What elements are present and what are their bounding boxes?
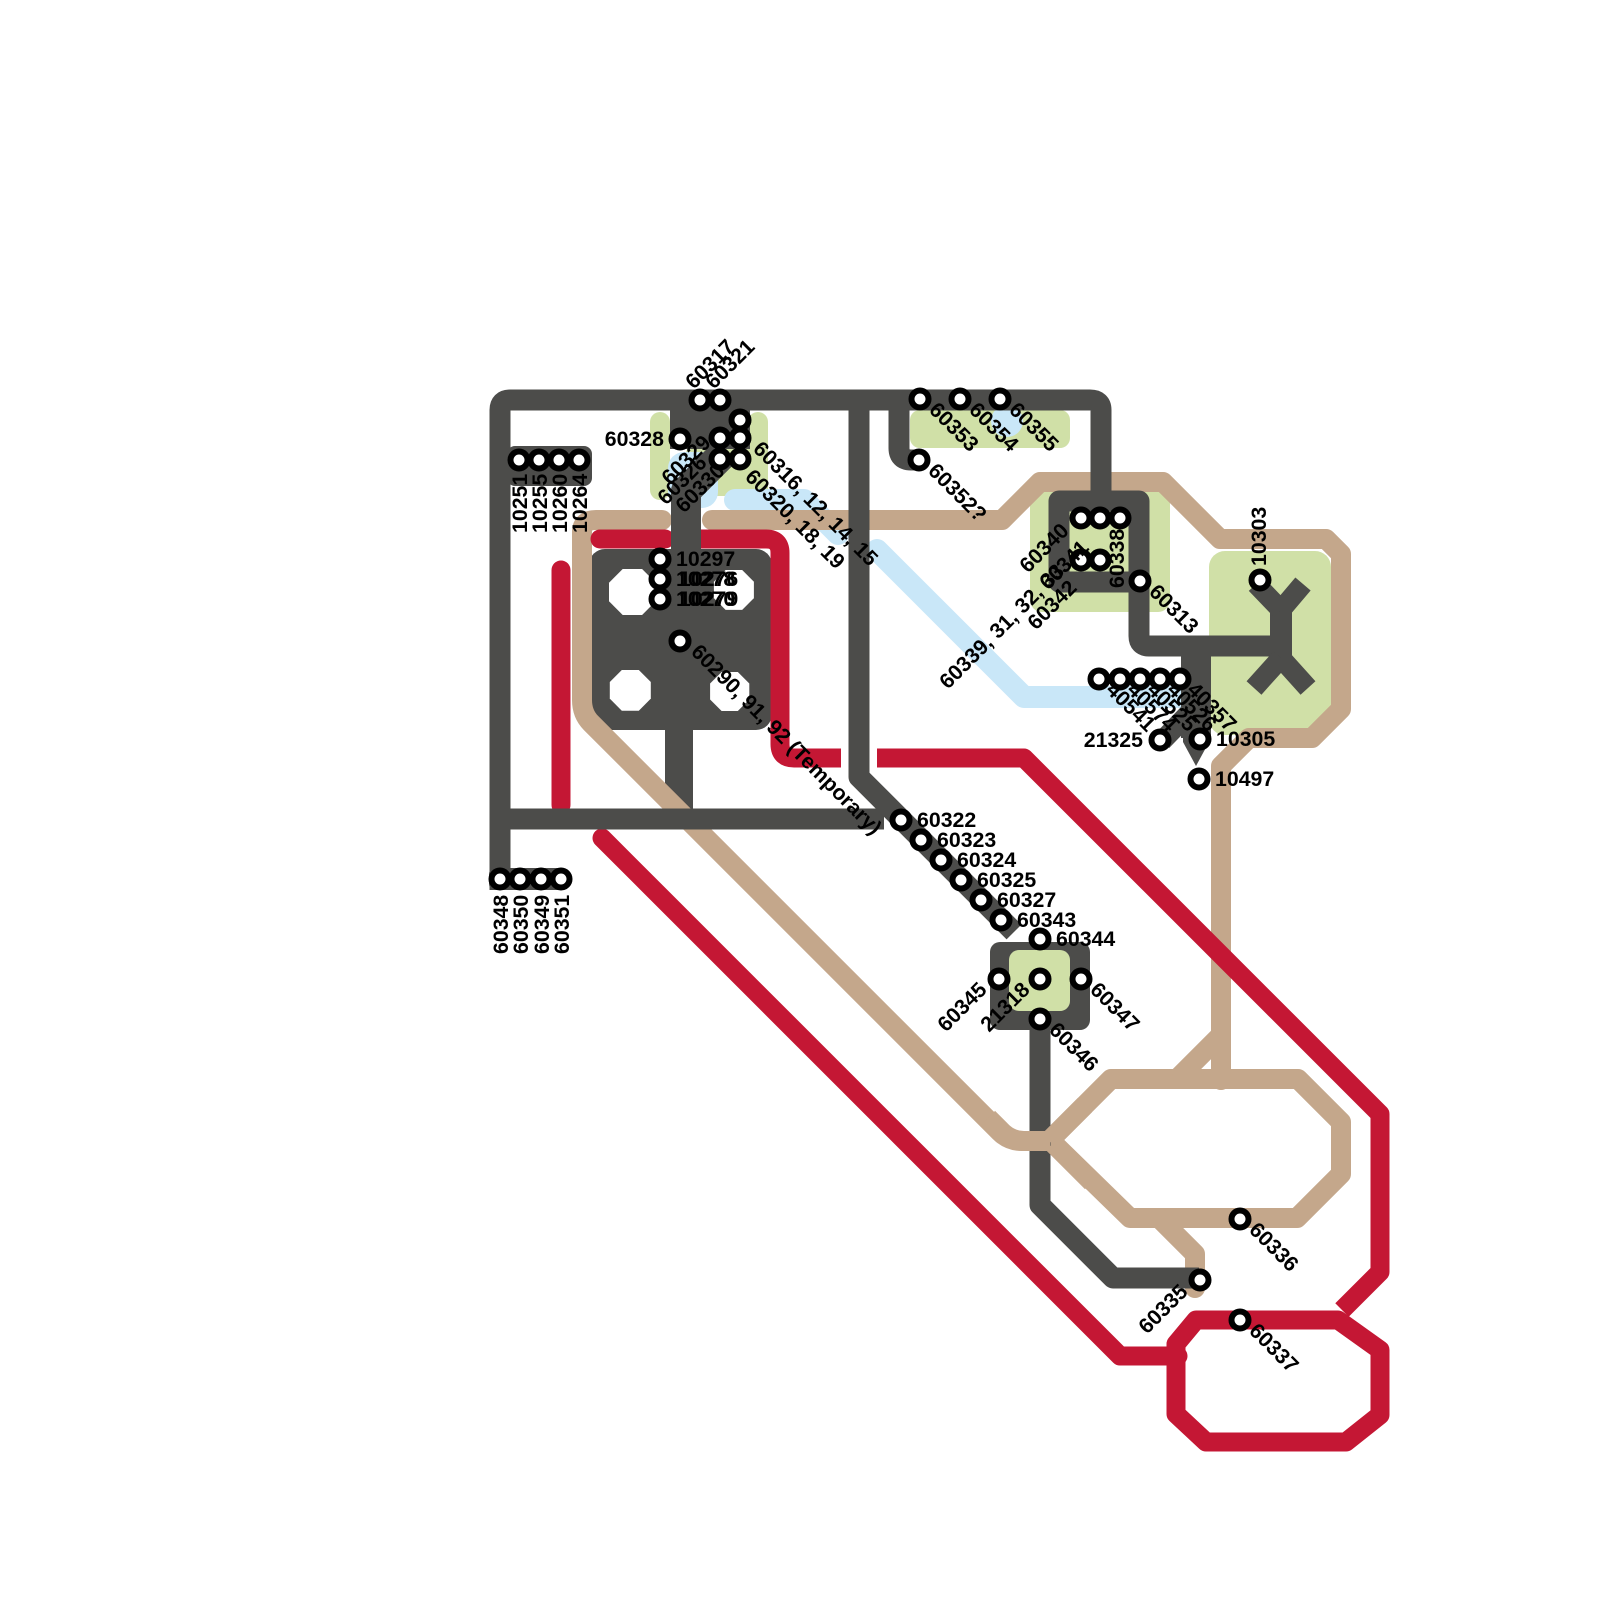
svg-text:10303: 10303 [1247,507,1271,566]
svg-text:60338: 60338 [1105,529,1129,588]
svg-text:10264: 10264 [568,474,592,533]
svg-text:21325: 21325 [1084,728,1143,752]
svg-text:60351: 60351 [550,895,574,954]
svg-text:60328: 60328 [605,427,664,451]
svg-text:10279: 10279 [679,587,738,611]
svg-text:60344: 60344 [1056,927,1115,951]
svg-text:10497: 10497 [1215,767,1274,791]
